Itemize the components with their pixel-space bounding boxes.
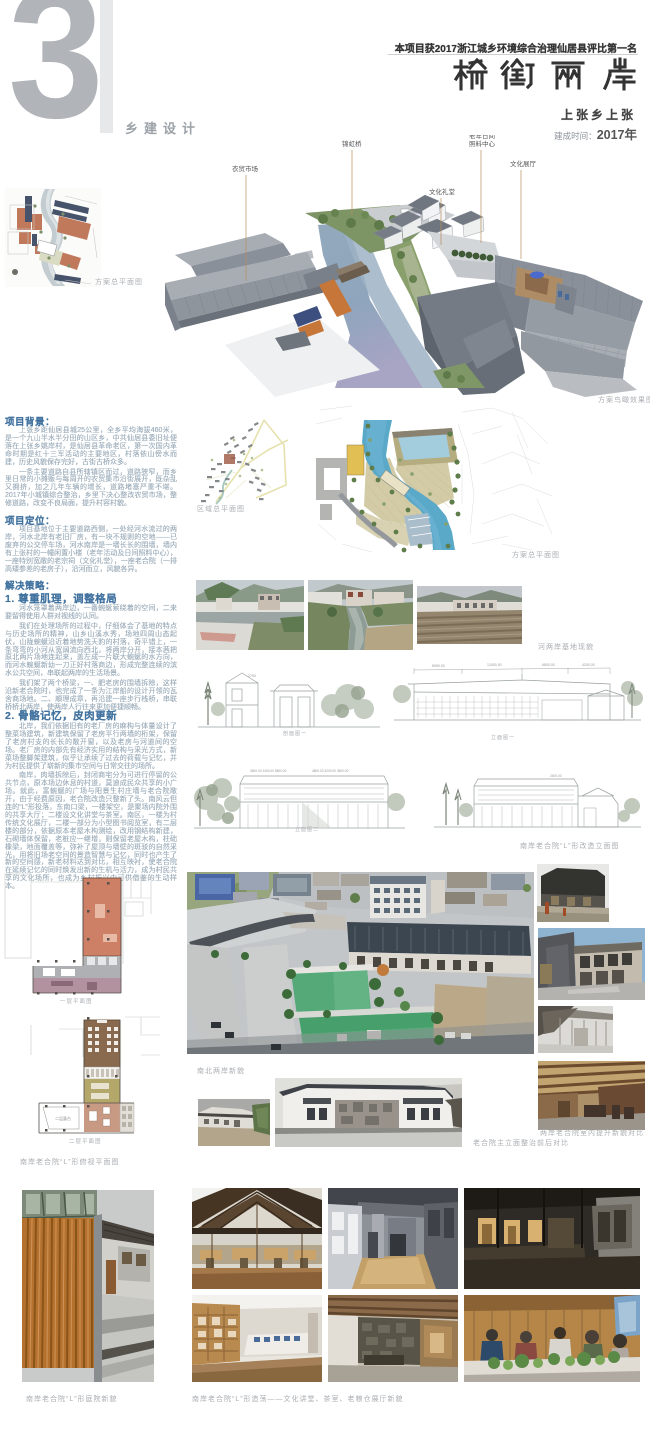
svg-text:二层露台: 二层露台 — [55, 1115, 71, 1121]
svg-text:3600.00 2400.00 5800.00: 3600.00 2400.00 5800.00 — [250, 769, 287, 773]
svg-text:衣贸市场: 衣贸市场 — [232, 164, 259, 173]
svg-text:4200.00: 4200.00 — [582, 663, 595, 667]
svg-text:文化礼堂: 文化礼堂 — [429, 187, 456, 196]
svg-text:6800.00: 6800.00 — [542, 663, 555, 667]
svg-text:老年日间: 老年日间 — [469, 135, 495, 140]
svg-text:8950.00: 8950.00 — [432, 664, 445, 668]
svg-text:文化展厅: 文化展厅 — [510, 159, 537, 168]
svg-text:2400.00: 2400.00 — [550, 774, 562, 778]
svg-text:锦虹桥: 锦虹桥 — [342, 139, 362, 148]
svg-text:12400.00: 12400.00 — [487, 663, 502, 667]
svg-text:照料中心: 照料中心 — [469, 139, 496, 148]
svg-text:2750: 2750 — [248, 674, 256, 678]
svg-text:4800.00 3200.00 3600.00: 4800.00 3200.00 3600.00 — [312, 769, 349, 773]
